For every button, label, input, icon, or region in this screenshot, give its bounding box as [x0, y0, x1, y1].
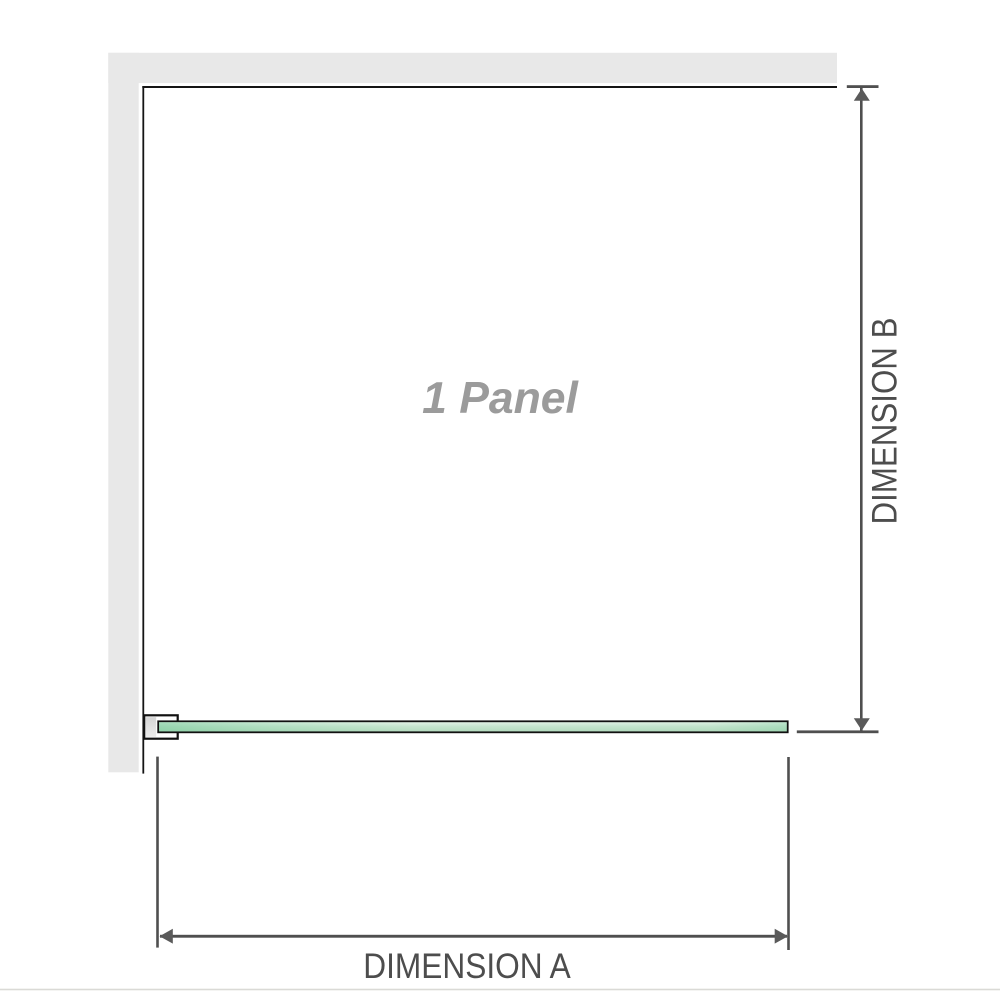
svg-text:DIMENSION B: DIMENSION B — [865, 318, 905, 525]
svg-text:DIMENSION A: DIMENSION A — [363, 946, 571, 986]
svg-text:1 Panel: 1 Panel — [422, 374, 579, 423]
